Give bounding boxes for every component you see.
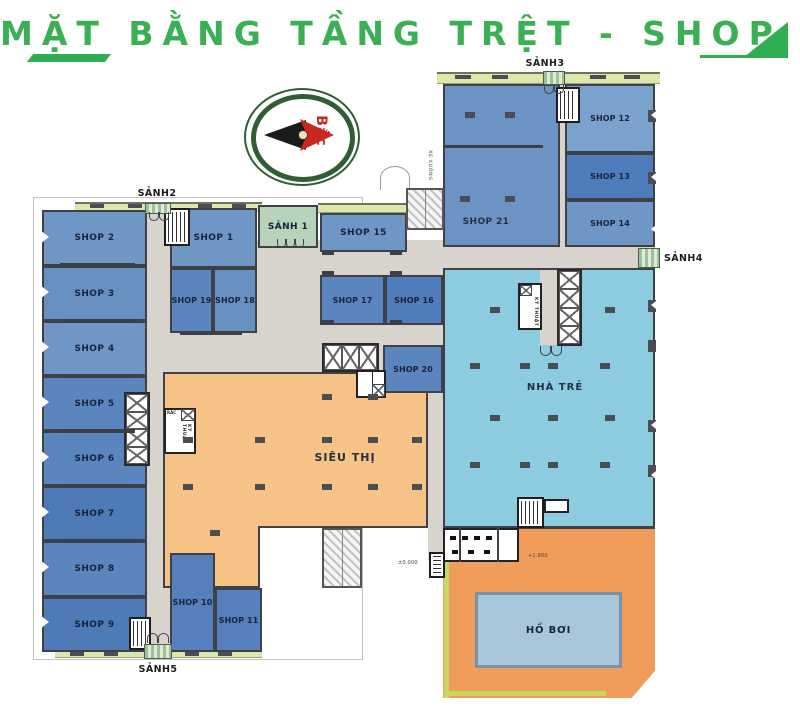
changing-room-wall bbox=[459, 528, 461, 562]
stair-pool-icon bbox=[429, 552, 445, 578]
door-arc bbox=[286, 239, 295, 248]
entry-strip-mid bbox=[318, 203, 408, 213]
elevator-icon bbox=[126, 394, 148, 412]
sanh2-label: SẢNH2 bbox=[117, 188, 197, 199]
toilet-fixture bbox=[450, 536, 456, 540]
level-ground: ±0.000 bbox=[398, 560, 418, 566]
room-supermarket bbox=[163, 372, 428, 528]
level-pool-deck: +1.900 bbox=[528, 553, 548, 559]
ramp-down-label: XE XUỐNG bbox=[427, 150, 432, 181]
wall-bar bbox=[60, 484, 135, 488]
wall-dash bbox=[648, 340, 656, 352]
room-label: SHOP 5 bbox=[74, 399, 114, 409]
stair-vestibule bbox=[544, 499, 569, 513]
column-mark bbox=[470, 363, 480, 369]
column-mark bbox=[368, 394, 378, 400]
column-mark bbox=[520, 462, 530, 468]
column-mark bbox=[322, 437, 332, 443]
wall-dash bbox=[185, 652, 199, 656]
room-shop-18: SHOP 18 bbox=[213, 268, 257, 333]
toilet-fixture bbox=[452, 550, 458, 554]
elevator-icon bbox=[126, 412, 148, 430]
shop21-label: SHOP 21 bbox=[450, 217, 522, 227]
elevator-icon bbox=[559, 271, 580, 289]
wall-bar bbox=[570, 198, 630, 202]
room-shop-15: SHOP 15 bbox=[320, 213, 407, 252]
page-title: MẶT BẰNG TẦNG TRỆT - SHOP HOUSE bbox=[0, 14, 800, 53]
trash-shaft-icon bbox=[181, 409, 195, 421]
room-shop-17: SHOP 17 bbox=[320, 275, 385, 325]
room-label: SHOP 12 bbox=[590, 114, 630, 123]
column-mark bbox=[465, 112, 475, 118]
header-green-strip bbox=[27, 54, 111, 62]
elevator-icon bbox=[324, 345, 342, 370]
wall-dash bbox=[455, 75, 471, 79]
column-mark bbox=[368, 484, 378, 490]
wall-dash bbox=[198, 204, 212, 208]
wall-dash bbox=[624, 75, 640, 79]
column-mark bbox=[600, 363, 610, 369]
column-mark bbox=[548, 363, 558, 369]
wall-dash bbox=[218, 652, 232, 656]
column-mark bbox=[183, 484, 193, 490]
door-arc bbox=[554, 85, 564, 94]
room-shop-11: SHOP 11 bbox=[215, 588, 262, 652]
room-label: SHOP 16 bbox=[394, 296, 434, 305]
elevator-icon bbox=[342, 345, 360, 370]
room-label: SHOP 17 bbox=[333, 296, 373, 305]
elevator-icon bbox=[559, 326, 580, 344]
room-label: SHOP 19 bbox=[172, 296, 212, 305]
room-label: SHOP 2 bbox=[74, 233, 114, 243]
ramp-center-line bbox=[342, 530, 343, 586]
door-sanh5 bbox=[144, 644, 172, 659]
room-label: SHOP 20 bbox=[393, 365, 433, 374]
compass-center-dot bbox=[298, 130, 308, 140]
wall-dash bbox=[104, 652, 118, 656]
elevator-icon bbox=[359, 345, 377, 370]
column-mark bbox=[520, 363, 530, 369]
ramp-door-arc bbox=[380, 166, 410, 190]
ramp-south bbox=[322, 528, 362, 588]
wall-bar bbox=[60, 374, 135, 378]
header-underline bbox=[700, 55, 788, 58]
room-label: SHOP 8 bbox=[74, 564, 114, 574]
wall-bar bbox=[443, 145, 543, 148]
pool-label: HỒ BƠI bbox=[526, 625, 571, 636]
wall-bar bbox=[322, 250, 334, 255]
kindergarten-label: NHÀ TRẺ bbox=[495, 382, 615, 393]
wall-bar bbox=[60, 539, 135, 543]
pool-deck-green-edge-bottom bbox=[446, 691, 606, 696]
wall-bar bbox=[390, 320, 402, 325]
column-mark bbox=[412, 484, 422, 490]
room-label: SẢNH 1 bbox=[268, 222, 308, 232]
door-arc bbox=[158, 633, 169, 643]
room-label: SHOP 6 bbox=[74, 454, 114, 464]
room-label: SHOP 10 bbox=[173, 598, 213, 607]
stair-kindergarten-icon bbox=[517, 497, 544, 528]
corridor-sanh4 bbox=[443, 247, 655, 268]
column-mark bbox=[255, 484, 265, 490]
toilet-fixture bbox=[484, 550, 490, 554]
elevator-icon bbox=[126, 447, 148, 465]
pool-deck-green-edge-left bbox=[444, 562, 449, 698]
room-label: SHOP 3 bbox=[74, 289, 114, 299]
wall-dash bbox=[590, 75, 606, 79]
sanh4-label: SẢNH4 bbox=[664, 253, 724, 264]
wall-bar bbox=[322, 271, 334, 276]
compass-north-label: Bắc bbox=[313, 115, 329, 146]
door-arc bbox=[551, 346, 562, 356]
wall-bar bbox=[60, 319, 135, 323]
wall-dash bbox=[70, 652, 84, 656]
toilet-fixture bbox=[462, 536, 468, 540]
room-label: SHOP 4 bbox=[74, 344, 114, 354]
column-mark bbox=[548, 462, 558, 468]
room-shop-10: SHOP 10 bbox=[170, 553, 215, 652]
room-shop-20: SHOP 20 bbox=[383, 345, 443, 393]
column-mark bbox=[605, 415, 615, 421]
floor-plan-page: MẶT BẰNG TẦNG TRỆT - SHOP HOUSE Bắc SHOP… bbox=[0, 0, 800, 716]
door-arc bbox=[540, 346, 551, 356]
room-shop-4: SHOP 4 bbox=[42, 321, 147, 376]
column-mark bbox=[322, 394, 332, 400]
room-label: SHOP 18 bbox=[215, 296, 255, 305]
room-label: SHOP 15 bbox=[340, 228, 387, 238]
wall-dash bbox=[492, 75, 508, 79]
room-label: SHOP 1 bbox=[193, 233, 233, 243]
room-shop-14: SHOP 14 bbox=[565, 200, 655, 247]
wall-dash bbox=[90, 204, 104, 208]
room-shop-13: SHOP 13 bbox=[565, 153, 655, 200]
room-label: SHOP 14 bbox=[590, 219, 630, 228]
column-mark bbox=[255, 437, 265, 443]
column-mark bbox=[412, 437, 422, 443]
technical-shaft-icon bbox=[520, 285, 532, 296]
supermarket-label: SIÊU THỊ bbox=[280, 451, 410, 464]
elevator-icon bbox=[559, 308, 580, 326]
wall-bar bbox=[60, 429, 135, 433]
column-mark bbox=[210, 530, 220, 536]
door-arc bbox=[159, 212, 169, 221]
door-sanh4 bbox=[638, 248, 660, 268]
wall-bar bbox=[390, 271, 402, 276]
wall-bar bbox=[322, 320, 334, 325]
column-mark bbox=[600, 462, 610, 468]
elevator-icon bbox=[559, 289, 580, 307]
toilet-fixture bbox=[486, 536, 492, 540]
sanh3-label: SẢNH3 bbox=[505, 58, 585, 69]
wall-dash bbox=[232, 204, 246, 208]
elevator-bank-east bbox=[557, 269, 582, 346]
wall-bar bbox=[390, 250, 402, 255]
technical-label: KỸ THUẬT bbox=[533, 297, 538, 326]
ramp-north bbox=[406, 188, 444, 230]
elevator-bank-central bbox=[322, 343, 379, 372]
column-mark bbox=[605, 307, 615, 313]
swimming-pool: HỒ BƠI bbox=[475, 592, 622, 668]
room-shop-3: SHOP 3 bbox=[42, 266, 147, 321]
toilet-fixture bbox=[468, 550, 474, 554]
column-mark bbox=[548, 415, 558, 421]
door-arc bbox=[149, 212, 159, 221]
door-arc bbox=[544, 85, 554, 94]
room-shop-19: SHOP 19 bbox=[170, 268, 213, 333]
wall-bar bbox=[60, 263, 135, 267]
room-shop-16: SHOP 16 bbox=[385, 275, 443, 325]
room-label: SHOP 9 bbox=[74, 620, 114, 630]
door-arc bbox=[277, 239, 286, 248]
door-sanh3 bbox=[543, 71, 565, 85]
room-shop-8: SHOP 8 bbox=[42, 541, 147, 597]
room-label: SHOP 7 bbox=[74, 509, 114, 519]
column-mark bbox=[505, 112, 515, 118]
room-shop-2: SHOP 2 bbox=[42, 210, 147, 266]
pool-changing-rooms bbox=[443, 528, 519, 562]
column-mark bbox=[368, 437, 378, 443]
sanh5-label: SẢNH5 bbox=[118, 664, 198, 675]
door-arc bbox=[147, 633, 158, 643]
column-mark bbox=[490, 415, 500, 421]
column-mark bbox=[505, 196, 515, 202]
changing-room-wall bbox=[497, 528, 499, 562]
trash-label: RÁC bbox=[167, 410, 176, 415]
wall-bar bbox=[180, 331, 242, 335]
wall-bar bbox=[570, 151, 630, 155]
room-label: SHOP 11 bbox=[219, 616, 259, 625]
toilet-fixture bbox=[474, 536, 480, 540]
room-label: SHOP 13 bbox=[590, 172, 630, 181]
room-shop-7: SHOP 7 bbox=[42, 486, 147, 541]
column-mark bbox=[322, 484, 332, 490]
wall-dash bbox=[128, 204, 142, 208]
column-mark bbox=[470, 462, 480, 468]
wall-bar bbox=[60, 595, 135, 599]
ramp-center-line bbox=[425, 190, 426, 228]
door-arc bbox=[295, 239, 304, 248]
column-mark bbox=[490, 307, 500, 313]
column-mark bbox=[460, 196, 470, 202]
column-mark bbox=[183, 437, 193, 443]
